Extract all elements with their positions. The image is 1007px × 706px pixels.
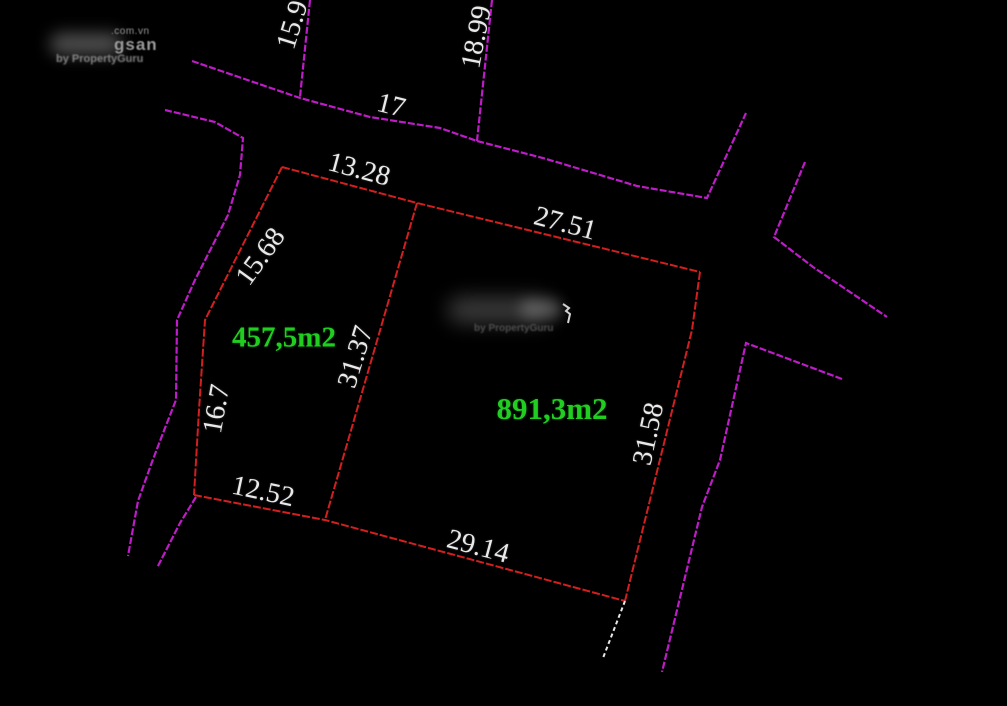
watermark-squiggle-icon: [563, 304, 570, 323]
road-right-upper: [774, 162, 887, 317]
corner-tick-line: [603, 601, 625, 658]
survey-linework: [0, 0, 1007, 706]
road-top-edge: [192, 61, 746, 198]
road-right-lower: [662, 343, 842, 672]
road-bottom-left-outer: [157, 497, 196, 568]
watermark-brand-text: gsan: [114, 35, 158, 55]
watermark-center-byline-text: by PropertyGuru: [474, 323, 553, 334]
cadastral-map-canvas: 15.9 18.99 17 13.28 27.51 15.68 16.7 31.…: [0, 0, 1007, 706]
parcel-bottom-boundary: [194, 495, 625, 601]
watermark-byline-text: by PropertyGuru: [56, 53, 143, 65]
road-left-edge: [128, 110, 243, 556]
watermark-center-blur-blob-2: [520, 300, 562, 318]
parcel1-area-label: 457,5m2: [232, 322, 336, 355]
parcel2-area-label: 891,3m2: [496, 391, 607, 427]
